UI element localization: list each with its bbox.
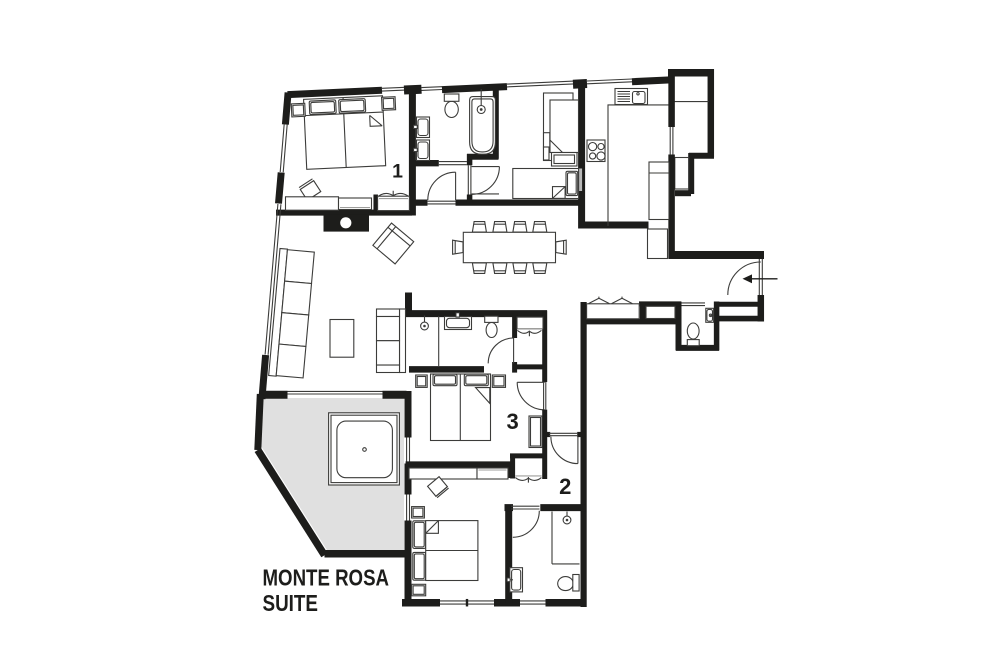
svg-text:SUITE: SUITE [263,590,319,616]
svg-text:3: 3 [506,409,518,434]
svg-text:2: 2 [559,474,571,499]
svg-text:1: 1 [392,161,403,183]
svg-text:MONTE ROSA: MONTE ROSA [263,564,390,590]
